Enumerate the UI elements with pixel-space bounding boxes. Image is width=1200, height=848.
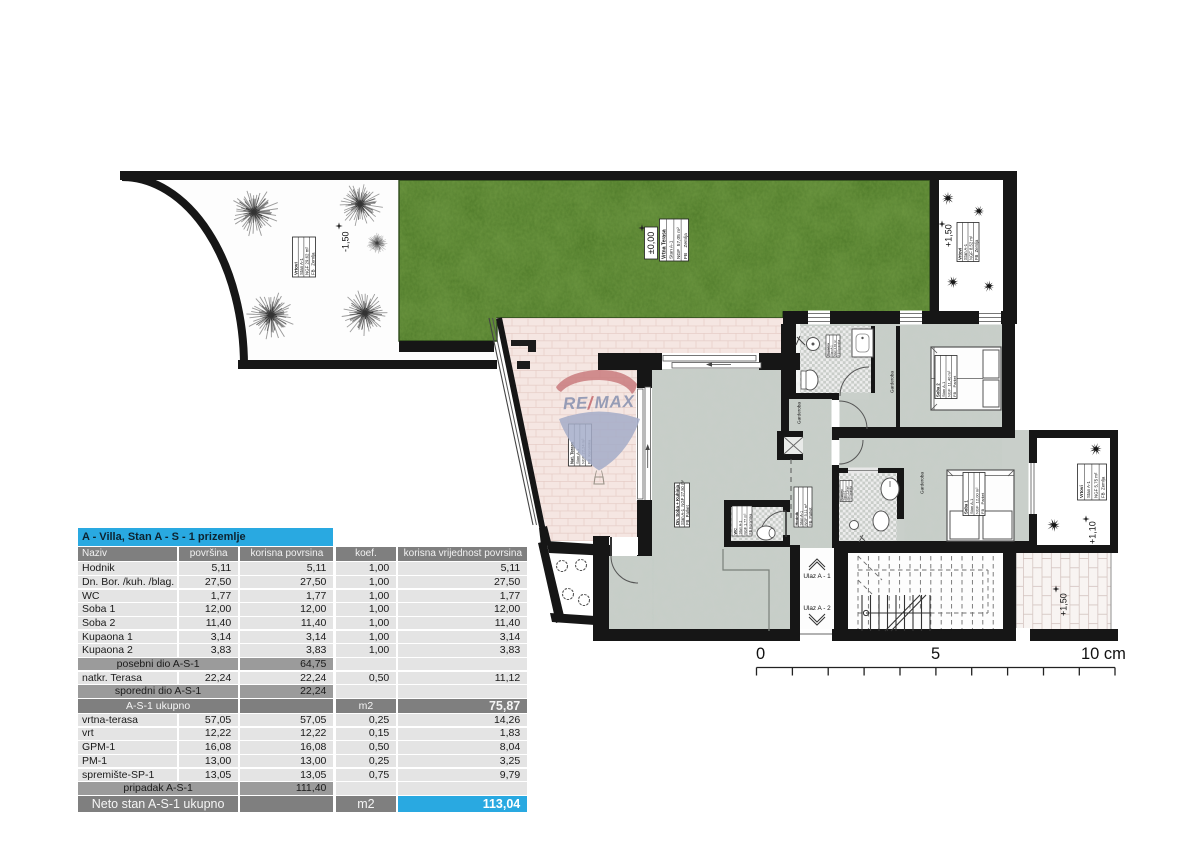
svg-text:Hodnik: Hodnik [794, 511, 799, 525]
svg-text:RE: RE [563, 393, 589, 413]
svg-text:Stan A-1: Stan A-1 [969, 498, 974, 514]
svg-text:MAX: MAX [594, 392, 636, 412]
svg-text:0: 0 [756, 645, 765, 663]
svg-text:+1,50: +1,50 [1059, 593, 1069, 616]
svg-text:Stan A-1: Stan A-1 [1086, 481, 1091, 498]
svg-text:Stan A-1: Stan A-1 [299, 258, 304, 275]
svg-text:Garderoba: Garderoba [920, 472, 925, 494]
svg-text:Vrtovi: Vrtovi [293, 262, 298, 275]
svg-text:NGF 12,00 m²: NGF 12,00 m² [975, 487, 980, 514]
svg-text:Stan A-1: Stan A-1 [963, 243, 968, 260]
svg-text:FB Zemlja: FB Zemlja [310, 252, 315, 275]
svg-text:FB Parket: FB Parket [685, 504, 690, 525]
svg-text:Garderoba: Garderoba [797, 402, 802, 424]
svg-text:Stan A-1: Stan A-1 [739, 521, 743, 535]
svg-text:NGF 29,62 m²: NGF 29,62 m² [305, 247, 310, 275]
svg-text:NGF 57,05 m²: NGF 57,05 m² [676, 227, 682, 259]
svg-text:Stan A-1: Stan A-1 [669, 240, 675, 259]
svg-text:Ulaz A - 1: Ulaz A - 1 [803, 573, 831, 580]
svg-text:Soba 2: Soba 2 [936, 383, 941, 397]
svg-text:WC: WC [734, 528, 738, 535]
svg-text:FB Zemlja: FB Zemlja [1101, 476, 1106, 498]
svg-text:NGF 1,77 m²: NGF 1,77 m² [744, 513, 748, 535]
svg-text:NGF 8,52 m²: NGF 8,52 m² [969, 235, 974, 260]
svg-text:FB Zemlja: FB Zemlja [974, 239, 979, 260]
svg-text:Vrtovi: Vrtovi [1079, 485, 1084, 498]
svg-text:FB Parket: FB Parket [809, 507, 813, 526]
svg-text:FB Parket: FB Parket [980, 492, 985, 514]
svg-text:FB Zemlja: FB Zemlja [683, 233, 689, 259]
svg-text:FB Keramika: FB Keramika [837, 339, 841, 356]
svg-text:NGF 11,40 m²: NGF 11,40 m² [947, 370, 952, 397]
svg-text:FB Parket: FB Parket [952, 375, 957, 397]
svg-text:Stan A-1: Stan A-1 [941, 381, 946, 397]
svg-text:NGF 5,11 m²: NGF 5,11 m² [804, 503, 808, 525]
svg-text:NGF 5,75 m²: NGF 5,75 m² [1093, 472, 1098, 498]
svg-text:10 cm: 10 cm [1081, 645, 1126, 663]
svg-text:FB Keramika: FB Keramika [850, 485, 853, 500]
svg-text:FB Keramika: FB Keramika [749, 514, 753, 535]
svg-text:Garderoba: Garderoba [890, 371, 895, 393]
svg-text:Vrtovi: Vrtovi [958, 248, 963, 260]
svg-text:Soba 1: Soba 1 [964, 500, 969, 514]
svg-text:+1,50: +1,50 [944, 224, 954, 247]
svg-text:+1,10: +1,10 [1088, 521, 1098, 544]
svg-text:Vrtna Terasa: Vrtna Terasa [662, 229, 668, 259]
svg-text:Stan A-1: Stan A-1 [800, 511, 804, 526]
svg-text:±0,00: ±0,00 [646, 232, 656, 254]
svg-text:5: 5 [931, 645, 940, 663]
svg-text:-1,50: -1,50 [341, 231, 351, 252]
svg-text:Ulaz A - 2: Ulaz A - 2 [803, 605, 831, 612]
